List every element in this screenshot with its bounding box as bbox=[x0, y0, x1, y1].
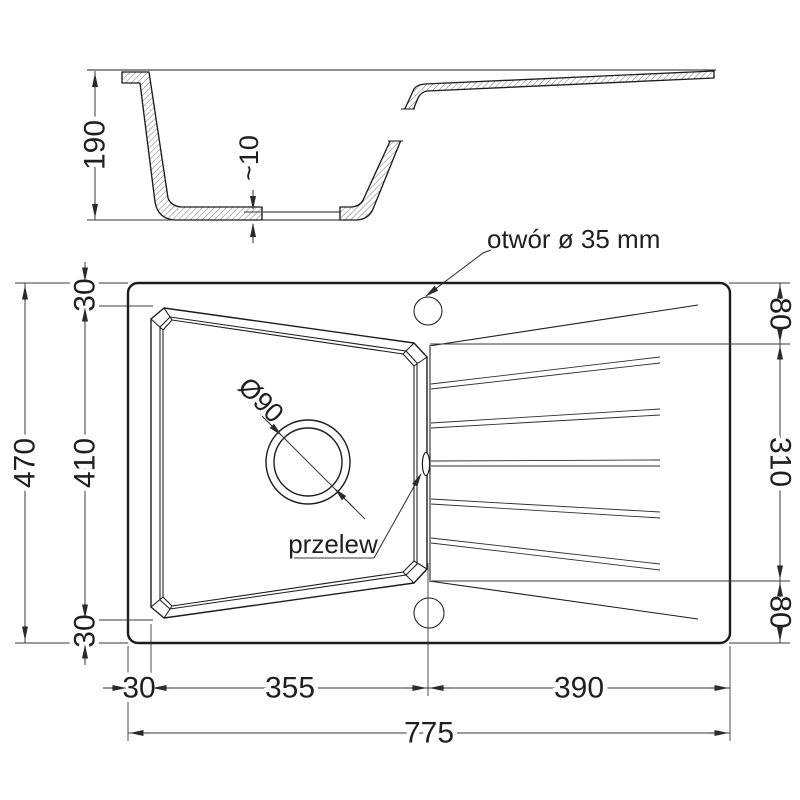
dim-30-top: 30 bbox=[69, 278, 102, 311]
section-bottom-gap-dimension: ~10 bbox=[234, 135, 264, 243]
section-view: 190 ~10 bbox=[79, 70, 717, 243]
dim-355: 355 bbox=[265, 672, 315, 705]
dim-30-bottom: 30 bbox=[69, 614, 102, 647]
dim-390: 390 bbox=[554, 672, 604, 705]
section-right-wall-drainboard bbox=[340, 71, 714, 220]
overflow-label: przelew bbox=[288, 529, 378, 559]
drawing-canvas: 190 ~10 bbox=[0, 0, 800, 800]
dim-80-bottom: 80 bbox=[764, 595, 797, 628]
tap-hole-label: otwór ø 35 mm bbox=[487, 224, 660, 254]
overflow-mark bbox=[422, 453, 429, 476]
dim-470: 470 bbox=[9, 438, 42, 488]
sink-technical-drawing: 190 ~10 bbox=[0, 0, 800, 800]
dim-190: 190 bbox=[79, 120, 112, 170]
dim-775: 775 bbox=[404, 717, 454, 750]
dim-30-left: 30 bbox=[122, 672, 155, 705]
section-overflow-gap bbox=[388, 109, 415, 141]
dim-410: 410 bbox=[69, 438, 102, 488]
dim-10: ~10 bbox=[234, 135, 264, 181]
plan-view: Ø90 przelew otwór ø 35 mm bbox=[9, 224, 797, 750]
dim-80-top: 80 bbox=[764, 297, 797, 330]
dim-310: 310 bbox=[764, 437, 797, 487]
